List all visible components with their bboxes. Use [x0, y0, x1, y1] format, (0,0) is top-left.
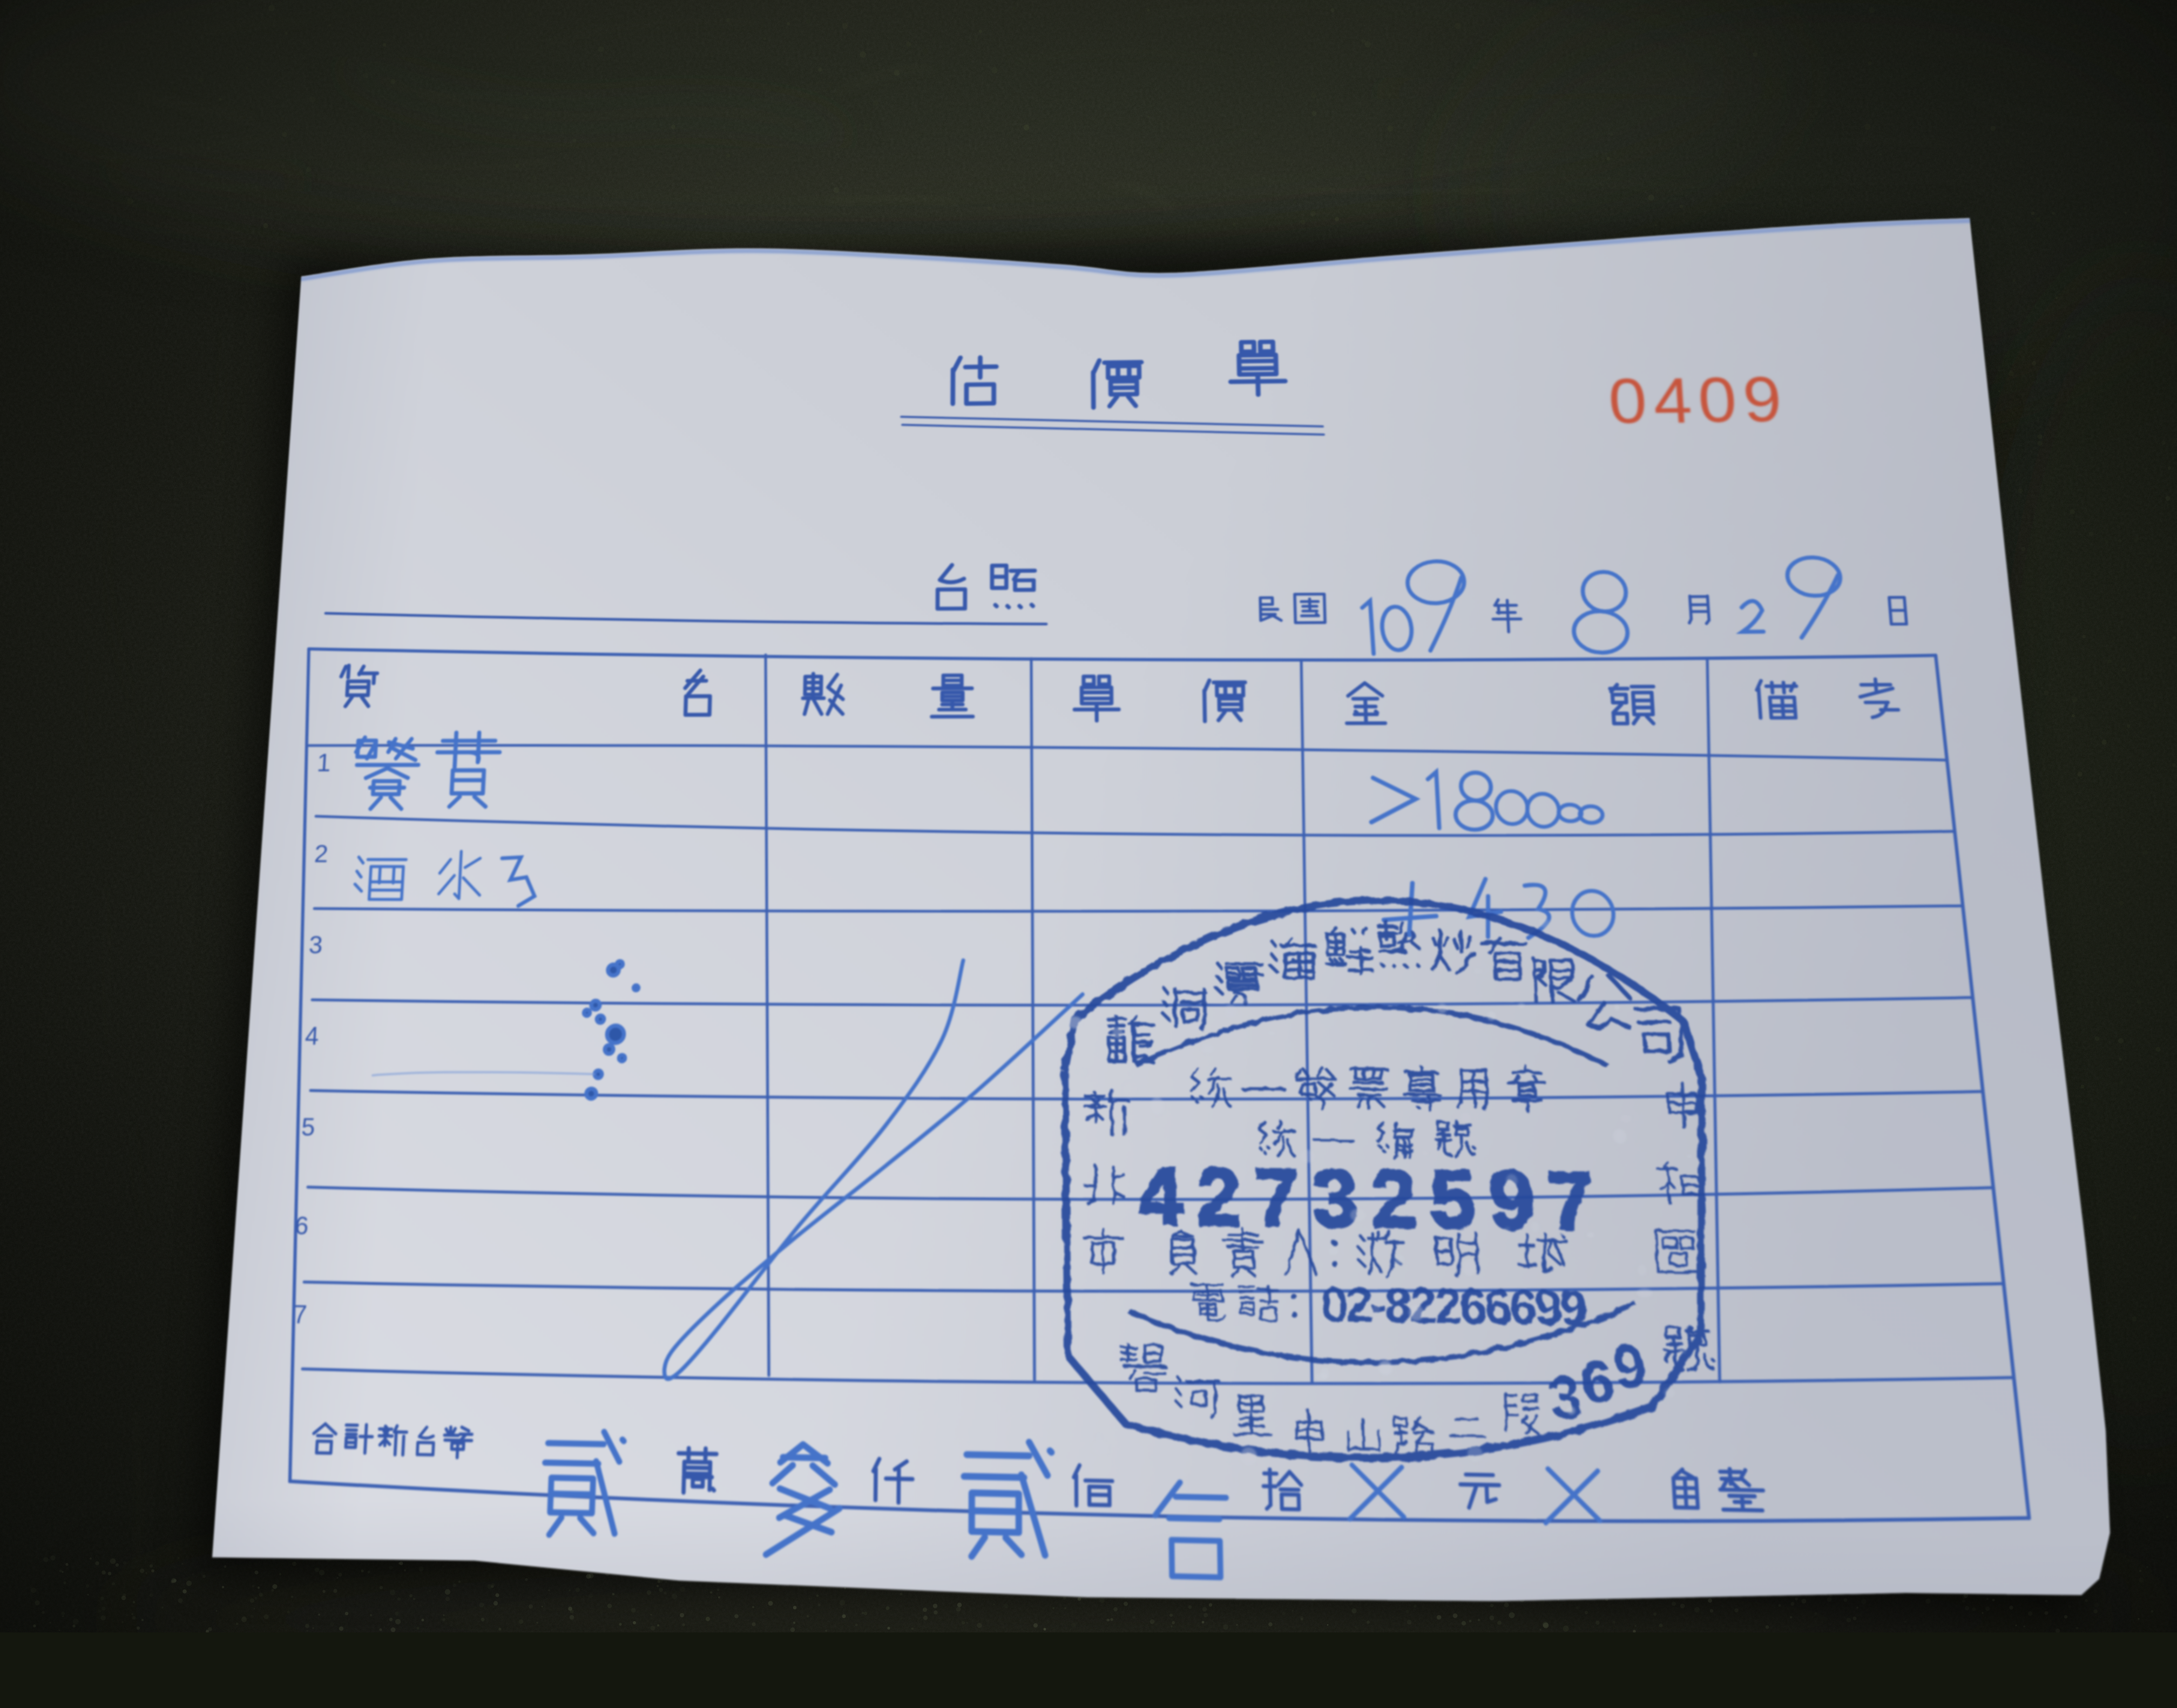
- svg-text:3: 3: [308, 931, 324, 959]
- svg-text:5: 5: [301, 1114, 316, 1142]
- svg-text:1: 1: [316, 749, 332, 777]
- svg-text:42732597: 42732597: [1138, 1151, 1610, 1248]
- svg-text:2: 2: [314, 839, 329, 867]
- svg-text:0409: 0409: [1607, 363, 1791, 437]
- svg-text:7: 7: [293, 1301, 308, 1329]
- svg-text:02-82266699: 02-82266699: [1320, 1276, 1587, 1336]
- svg-text:6: 6: [294, 1212, 309, 1241]
- svg-text:4: 4: [305, 1021, 320, 1050]
